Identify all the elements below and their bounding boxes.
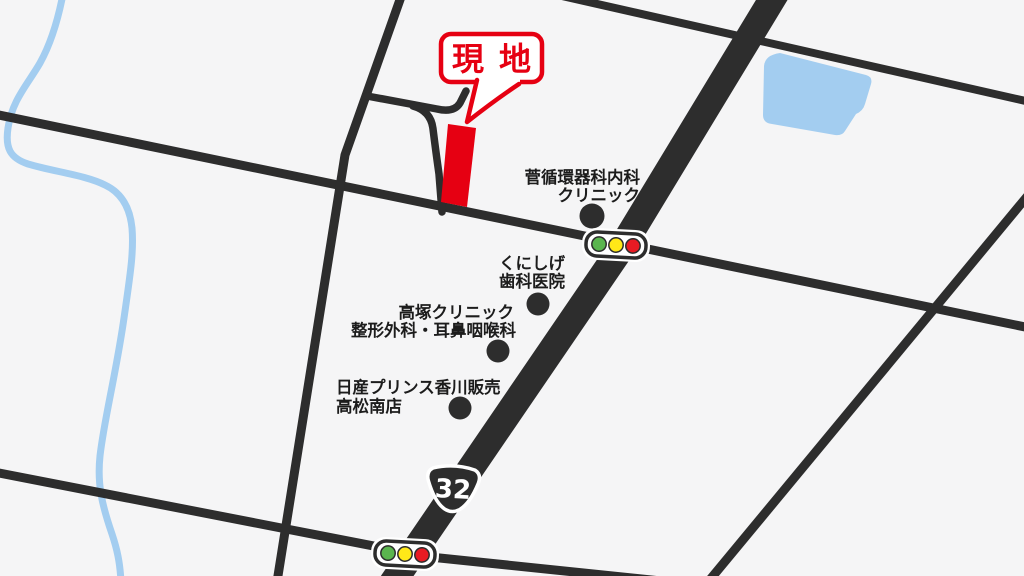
route-number: 32	[434, 474, 472, 506]
road-east-west-upper	[0, 114, 1024, 328]
landmark-label-line2: 歯科医院	[499, 271, 566, 291]
signal-lamp-yellow	[608, 237, 623, 252]
landmark-label-line2: 整形外科・耳鼻咽喉科	[351, 320, 517, 340]
signal-lamp-red	[414, 547, 429, 562]
landmark-label-line1: 高塚クリニック	[399, 302, 515, 322]
landmark-label-line1: 日産プリンス香川販売	[336, 377, 501, 397]
landmark-label-line1: くにしげ	[499, 254, 566, 273]
landmark-label-kan-junkanki: 菅循環器科内科 クリニック	[525, 167, 641, 205]
traffic-signal-icon-lower	[370, 536, 440, 572]
road-left-diagonal	[277, 0, 402, 576]
landmark-dot-kan-junkanki	[580, 204, 605, 229]
traffic-signal-icon-upper	[581, 227, 651, 263]
access-map: 32 菅循環器科内科 クリニック くにしげ 歯科医院 高塚クリニック	[0, 0, 1024, 576]
callout-tail	[467, 80, 519, 122]
landmark-dot-nissan-prince	[449, 397, 472, 420]
signal-lamp-red	[625, 238, 640, 253]
signal-lamp-yellow	[397, 546, 412, 561]
access-road-branch	[413, 106, 442, 212]
landmark-dot-takatsuka	[487, 340, 510, 363]
landmark-dot-kunishige	[527, 293, 550, 316]
landmark-label-kunishige: くにしげ 歯科医院	[499, 254, 566, 291]
road-right-diagonal	[708, 193, 1024, 576]
landmark-label-takatsuka: 高塚クリニック 整形外科・耳鼻咽喉科	[351, 302, 517, 340]
signal-lamp-green	[591, 237, 606, 252]
signal-lamp-green	[380, 546, 395, 561]
site-marker	[441, 124, 476, 207]
landmark-label-line2: 高松南店	[336, 396, 402, 416]
site-callout-label: 現地	[452, 40, 546, 78]
landmark-label-line1: 菅循環器科内科	[525, 167, 641, 187]
landmark-label-nissan-prince: 日産プリンス香川販売 高松南店	[336, 377, 501, 416]
map-canvas: 32 菅循環器科内科 クリニック くにしげ 歯科医院 高塚クリニック	[0, 0, 1024, 576]
landmark-label-line2: クリニック	[558, 186, 641, 205]
